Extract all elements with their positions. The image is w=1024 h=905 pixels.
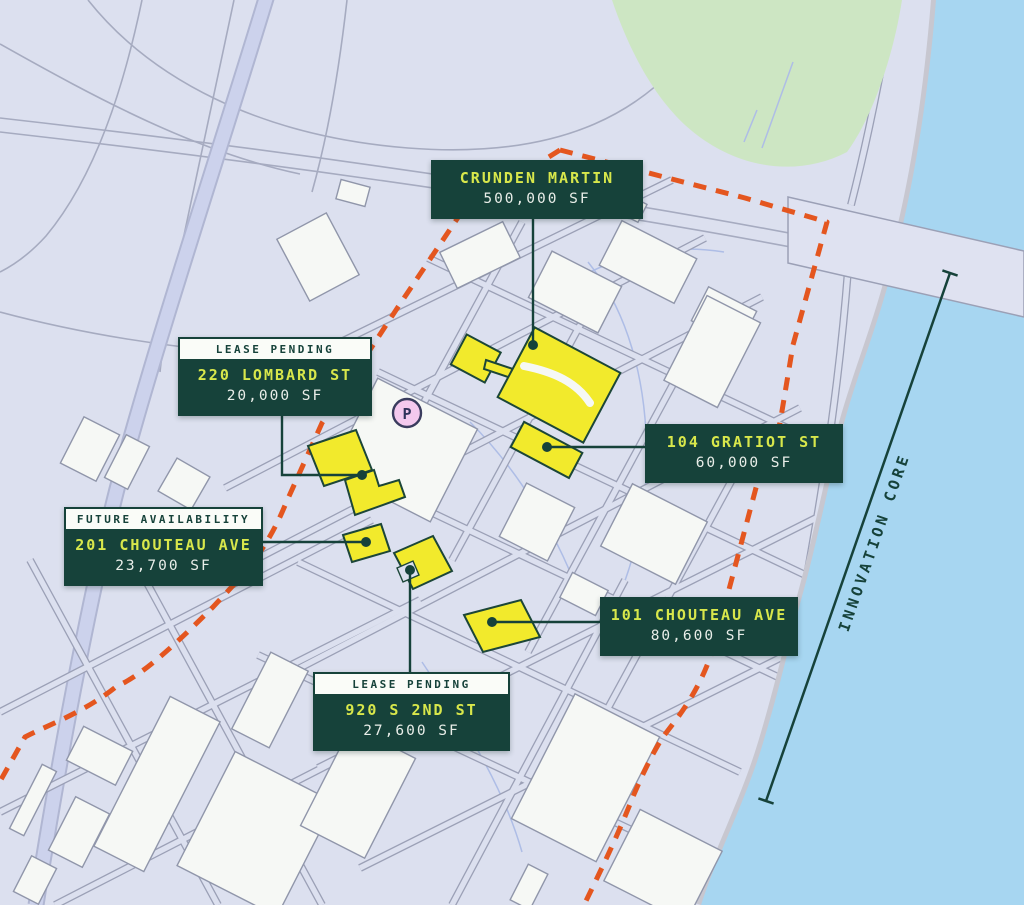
label-body: CRUNDEN MARTIN 500,000 SF [433, 162, 641, 217]
label-101-chouteau[interactable]: 101 CHOUTEAU AVE 80,600 SF [600, 597, 798, 656]
label-body: 920 S 2ND ST 27,600 SF [315, 694, 508, 749]
label-status-tag: FUTURE AVAILABILITY [66, 509, 261, 529]
label-body: 104 GRATIOT ST 60,000 SF [647, 426, 841, 481]
label-104-gratiot[interactable]: 104 GRATIOT ST 60,000 SF [645, 424, 843, 483]
label-status-tag: LEASE PENDING [315, 674, 508, 694]
label-220-lombard[interactable]: LEASE PENDING 220 LOMBARD ST 20,000 SF [178, 337, 372, 416]
label-status-tag: LEASE PENDING [180, 339, 370, 359]
site-map: INNOVATION CORE P CRUNDEN MARTIN 500,000… [0, 0, 1024, 905]
map-canvas: INNOVATION CORE P [0, 0, 1024, 905]
label-crunden-martin[interactable]: CRUNDEN MARTIN 500,000 SF [431, 160, 643, 219]
parking-letter: P [402, 405, 411, 423]
label-title: 201 CHOUTEAU AVE [72, 535, 255, 557]
label-value: 27,600 SF [321, 722, 502, 742]
label-title: CRUNDEN MARTIN [439, 168, 635, 190]
label-body: 101 CHOUTEAU AVE 80,600 SF [602, 599, 796, 654]
label-value: 60,000 SF [653, 454, 835, 474]
label-value: 80,600 SF [608, 627, 790, 647]
label-title: 920 S 2ND ST [321, 700, 502, 722]
parking-icon[interactable]: P [393, 399, 421, 427]
label-201-chouteau[interactable]: FUTURE AVAILABILITY 201 CHOUTEAU AVE 23,… [64, 507, 263, 586]
label-title: 101 CHOUTEAU AVE [608, 605, 790, 627]
label-920-s-2nd[interactable]: LEASE PENDING 920 S 2ND ST 27,600 SF [313, 672, 510, 751]
label-value: 500,000 SF [439, 190, 635, 210]
label-body: 220 LOMBARD ST 20,000 SF [180, 359, 370, 414]
label-value: 23,700 SF [72, 557, 255, 577]
label-value: 20,000 SF [186, 387, 364, 407]
label-body: 201 CHOUTEAU AVE 23,700 SF [66, 529, 261, 584]
label-title: 104 GRATIOT ST [653, 432, 835, 454]
label-title: 220 LOMBARD ST [186, 365, 364, 387]
